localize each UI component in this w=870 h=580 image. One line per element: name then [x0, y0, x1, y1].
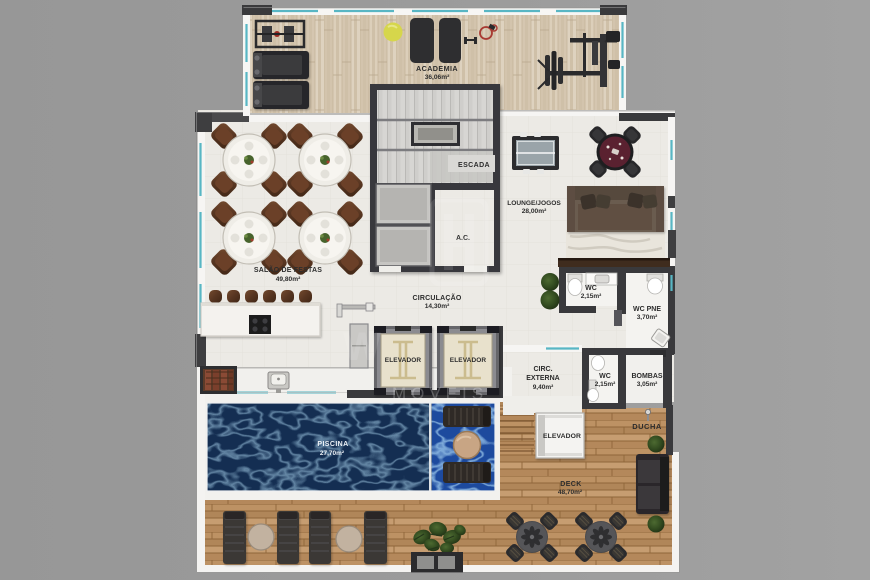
svg-text:WC: WC: [599, 373, 611, 380]
svg-text:LOUNGE/JOGOS: LOUNGE/JOGOS: [507, 200, 561, 207]
svg-text:2,15m²: 2,15m²: [581, 293, 602, 300]
svg-text:BOMBAS: BOMBAS: [631, 373, 662, 380]
svg-text:28,00m²: 28,00m²: [522, 208, 547, 215]
svg-text:CIRCULAÇÃO: CIRCULAÇÃO: [412, 293, 461, 302]
svg-text:3,05m²: 3,05m²: [637, 381, 658, 388]
svg-text:ELEVADOR: ELEVADOR: [450, 357, 487, 364]
svg-text:14,30m²: 14,30m²: [425, 303, 450, 310]
svg-text:3,70m²: 3,70m²: [637, 314, 658, 321]
svg-text:WC PNE: WC PNE: [633, 306, 661, 313]
svg-text:27,70m²: 27,70m²: [320, 450, 345, 457]
svg-text:ESCADA: ESCADA: [458, 162, 490, 169]
svg-text:DUCHA: DUCHA: [632, 422, 662, 431]
svg-text:ACADEMIA: ACADEMIA: [416, 64, 458, 73]
svg-text:CIRC.: CIRC.: [533, 366, 552, 373]
svg-text:WC: WC: [585, 285, 597, 292]
svg-text:PISCINA: PISCINA: [317, 441, 348, 448]
svg-text:9,40m²: 9,40m²: [533, 384, 554, 391]
svg-text:ELEVADOR: ELEVADOR: [385, 357, 422, 364]
svg-text:MOVEIS: MOVEIS: [392, 384, 488, 403]
svg-text:SALÃO DE FESTAS: SALÃO DE FESTAS: [254, 265, 322, 274]
svg-text:DECK: DECK: [560, 481, 581, 488]
svg-text:2,15m²: 2,15m²: [595, 381, 616, 388]
svg-text:W: W: [343, 325, 381, 369]
svg-text:ELEVADOR: ELEVADOR: [543, 433, 581, 440]
svg-text:48,70m²: 48,70m²: [558, 489, 583, 496]
svg-text:49,80m²: 49,80m²: [276, 276, 301, 283]
svg-text:EXTERNA: EXTERNA: [526, 375, 559, 382]
svg-text:36,06m²: 36,06m²: [425, 74, 450, 81]
